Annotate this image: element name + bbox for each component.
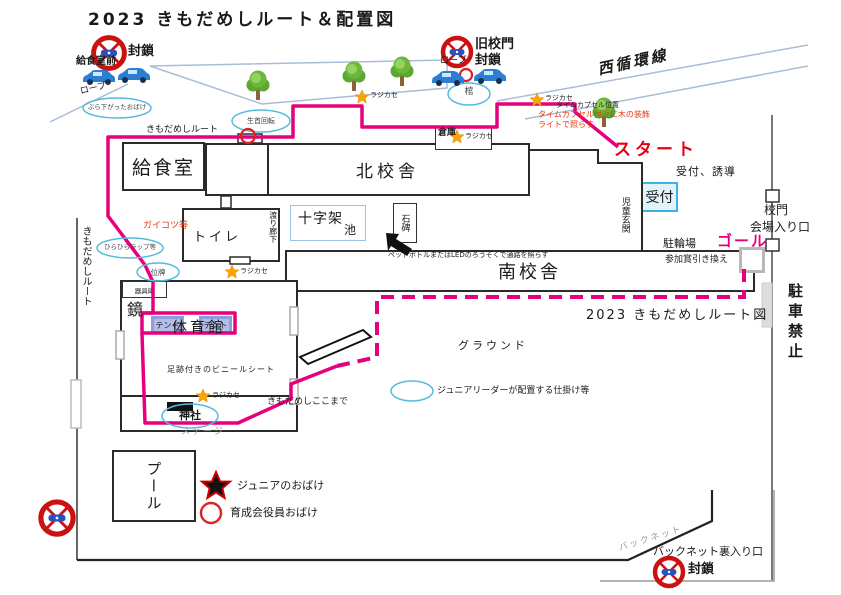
tree-icon bbox=[391, 57, 414, 87]
corridor-label: 渡り廊下 bbox=[268, 211, 278, 257]
legend-junior-ghost-label: ジュニアのおばけ bbox=[237, 479, 324, 492]
stone-monument-label: 石碑 bbox=[399, 214, 412, 232]
children-entrance-label: 児童玄関 bbox=[619, 197, 630, 247]
cross-label: 十字架 bbox=[298, 211, 343, 228]
rope-label-left: ロープ bbox=[79, 81, 107, 97]
footprint-sheet-label: 足跡付きのビニールシート bbox=[167, 365, 275, 375]
bicycle-parking-label: 駐輪場 bbox=[663, 237, 696, 250]
bottle-note-label: ペットボトルまたはLEDのろうそくで通路を照らす bbox=[388, 251, 548, 259]
memorial-tablet-label: 位牌 bbox=[140, 268, 176, 277]
time-capsule-note-2: ライトで照らす bbox=[538, 120, 594, 130]
kitchen-label: 給食室 bbox=[132, 153, 195, 180]
rotating-head-label: 生首回転 bbox=[236, 117, 286, 125]
road-north bbox=[50, 45, 808, 122]
mirror-label: 鏡 bbox=[127, 300, 143, 319]
old-gate-label: 旧校門 bbox=[475, 37, 514, 53]
legend-junior-star-icon bbox=[202, 472, 230, 498]
kimodameshi-map: 給食室 北校舎 トイレ 石碑 受付 器具庫 テント テント プール bbox=[0, 0, 841, 595]
gym-building bbox=[120, 280, 298, 432]
radio-label: ラジカセ bbox=[465, 132, 493, 140]
no-entry-icon-bottom-left bbox=[41, 502, 73, 534]
reception-label: 受付 bbox=[646, 187, 674, 207]
stone-monument-box: 石碑 bbox=[393, 203, 417, 243]
car-icon bbox=[432, 71, 464, 86]
pond-label: 池 bbox=[344, 223, 356, 237]
equipment-room-box: 器具庫 bbox=[122, 281, 167, 298]
south-building-label: 南校舎 bbox=[498, 262, 561, 284]
flutter-wrap-label: ひらひらラップ等 bbox=[99, 244, 161, 252]
rope-label-right: ロープ bbox=[440, 56, 466, 67]
no-parking-label: 駐車禁止 bbox=[786, 283, 804, 388]
tree-icon bbox=[247, 71, 270, 101]
route-left-label: きもだめしルート bbox=[79, 226, 91, 322]
page-title: 2023 きもだめしルート＆配置図 bbox=[88, 10, 396, 30]
prize-exchange-label: 参加賞引き換え bbox=[665, 255, 728, 266]
time-capsule-note-1: タイムカプセル付近に木の装飾 bbox=[538, 110, 650, 120]
tree-icon bbox=[343, 62, 366, 92]
blockade-label-old-gate: 封鎖 bbox=[475, 53, 501, 69]
backnet-entrance-label: バックネット裏入り口 bbox=[653, 545, 763, 558]
reception-box: 受付 bbox=[641, 182, 678, 212]
gym-label: 体育館 bbox=[172, 318, 226, 336]
ground-label: グラウンド bbox=[458, 339, 528, 352]
pool-building: プール bbox=[112, 450, 196, 522]
north-building: 北校舎 bbox=[205, 143, 530, 196]
pool-label: プール bbox=[144, 461, 165, 512]
kitchen-front-label: 給食室前 bbox=[76, 56, 116, 68]
toilet-building: トイレ bbox=[182, 208, 280, 262]
north-building-label: 北校舎 bbox=[356, 157, 419, 182]
legend-staff-circle-icon bbox=[201, 503, 221, 523]
route-end-label: きもだめしここまで bbox=[267, 397, 348, 408]
school-gate-label: 校門 bbox=[764, 203, 788, 217]
legend-staff-ghost-label: 育成会役員おばけ bbox=[230, 506, 318, 519]
blockade-label-backnet: 封鎖 bbox=[688, 562, 714, 578]
warehouse-label: 倉庫 bbox=[438, 128, 456, 139]
radio-label: ラジカセ bbox=[370, 91, 398, 99]
start-label: スタート bbox=[614, 140, 698, 160]
stage-label: ステージ bbox=[181, 427, 225, 438]
west-loop-line-label: 西循環線 bbox=[596, 46, 670, 79]
car-icon bbox=[474, 69, 506, 84]
toilet-label: トイレ bbox=[193, 226, 241, 245]
hanging-ghost-label: ぶら下がったおばけ bbox=[86, 104, 148, 112]
time-capsule-pos-label: タイムカプセル位置 bbox=[556, 101, 619, 109]
junior-leader-trick-label: ジュニアリーダーが配置する仕掛け等 bbox=[437, 386, 589, 397]
shrine-label: 神社 bbox=[172, 409, 208, 422]
radio-label: ラジカセ bbox=[240, 267, 268, 275]
goal-box bbox=[739, 247, 765, 273]
coffin-label: 棺 bbox=[455, 87, 483, 98]
route-top-label: きもだめしルート bbox=[146, 125, 218, 136]
skeletons-label: ガイコツ等 bbox=[143, 221, 188, 232]
goal-label: ゴール bbox=[717, 232, 768, 250]
equipment-room-label: 器具庫 bbox=[135, 285, 155, 295]
radio-label: ラジカセ bbox=[212, 391, 240, 399]
route-map-caption: 2023 きもだめしルート図 bbox=[586, 308, 768, 324]
blockade-label-top-left: 封鎖 bbox=[128, 44, 154, 60]
kitchen-building: 給食室 bbox=[122, 142, 205, 191]
reception-guide-label: 受付、誘導 bbox=[676, 165, 736, 178]
car-icon bbox=[118, 68, 150, 83]
no-entry-icon-backnet bbox=[655, 558, 683, 586]
